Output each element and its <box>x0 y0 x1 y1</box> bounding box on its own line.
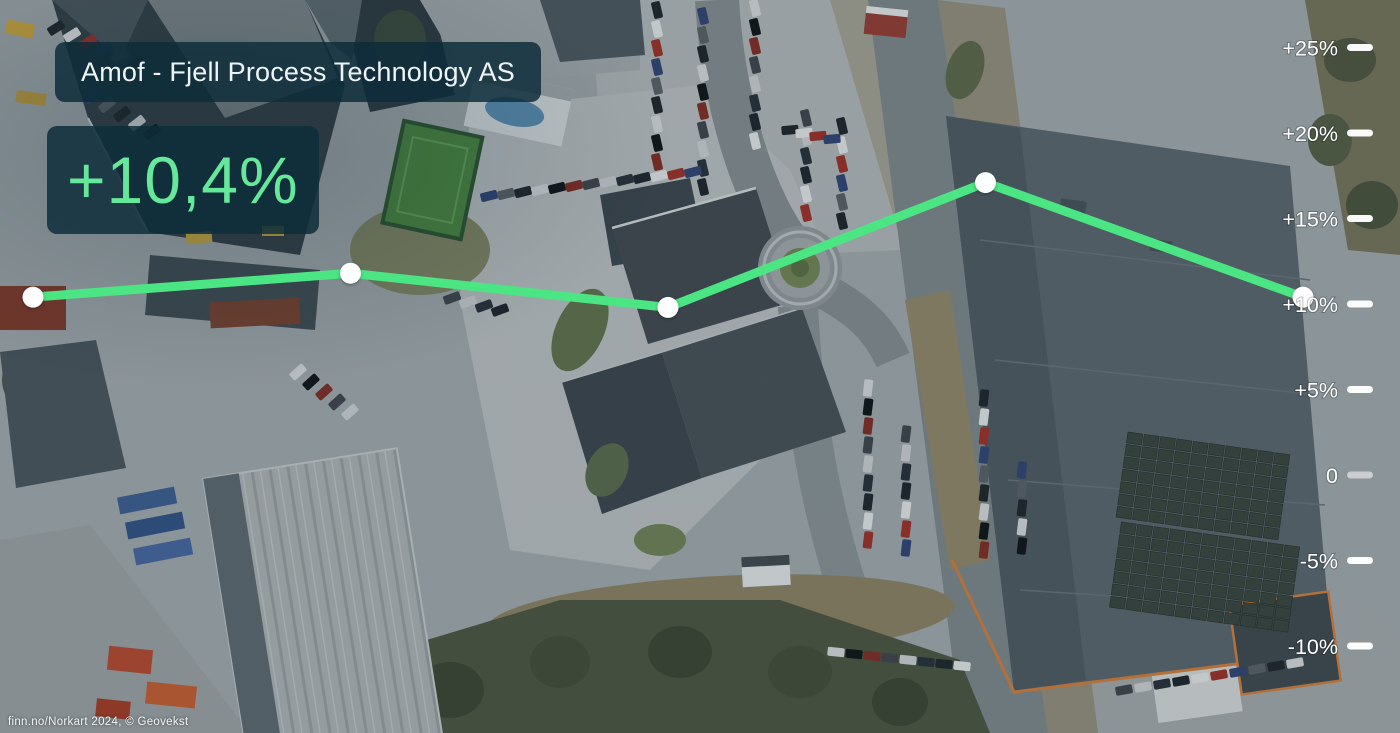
company-map-card: +25%+20%+15%+10%+5%0-5%-10% Amof - Fjell… <box>0 0 1400 733</box>
value-change-label: +10,4% <box>67 142 299 218</box>
value-change-banner: +10,4% <box>47 126 319 234</box>
map-attribution: finn.no/Norkart 2024, © Geovekst <box>8 716 188 728</box>
aerial-photo-background <box>0 0 1400 733</box>
company-name-banner: Amof - Fjell Process Technology AS <box>55 42 541 102</box>
company-name-label: Amof - Fjell Process Technology AS <box>81 57 515 88</box>
roundabout <box>758 226 842 310</box>
